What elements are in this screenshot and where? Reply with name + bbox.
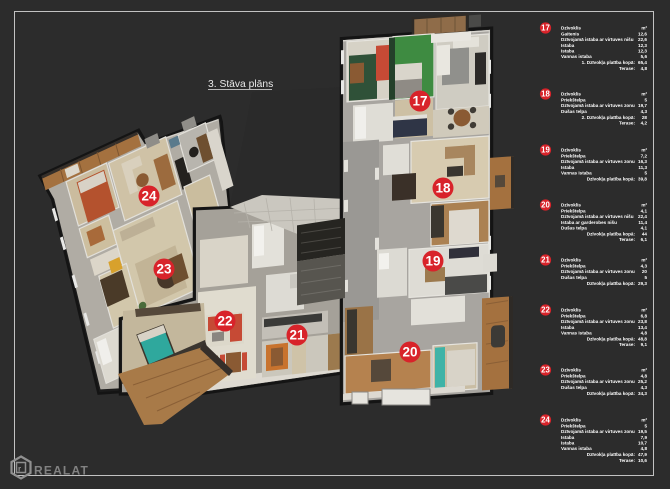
svg-text:Dzīvokļa platība kopā:: Dzīvokļa platība kopā:: [587, 391, 636, 396]
svg-text:Dzīvoklis: Dzīvoklis: [561, 92, 581, 97]
svg-text:Terase:: Terase:: [619, 121, 635, 126]
svg-text:17: 17: [412, 94, 427, 109]
svg-text:7,2: 7,2: [641, 154, 648, 159]
svg-text:4,8: 4,8: [641, 66, 648, 71]
svg-text:Dzīvojamā istaba ar virtuves z: Dzīvojamā istaba ar virtuves zonu: [561, 103, 635, 108]
svg-text:Dzīvojamā istaba ar virtuves z: Dzīvojamā istaba ar virtuves zonu: [561, 379, 635, 384]
svg-text:25,2: 25,2: [638, 379, 647, 384]
svg-text:Dzīvoklis: Dzīvoklis: [561, 203, 581, 208]
svg-text:19: 19: [541, 146, 550, 155]
svg-text:29,3: 29,3: [638, 281, 647, 286]
svg-text:Vannas istaba: Vannas istaba: [561, 330, 592, 335]
svg-text:34,3: 34,3: [638, 391, 647, 396]
svg-text:Priekštelpa: Priekštelpa: [561, 98, 586, 103]
svg-text:11,4: 11,4: [638, 220, 647, 225]
svg-text:Dzīvokļa platība kopā:: Dzīvokļa platība kopā:: [587, 281, 636, 286]
svg-text:4,3: 4,3: [641, 109, 648, 114]
svg-text:Dzīvoklis: Dzīvoklis: [561, 26, 581, 31]
svg-text:Dzīvoklis: Dzīvoklis: [561, 148, 581, 153]
svg-text:Dušas telpa: Dušas telpa: [561, 385, 587, 390]
svg-text:10,6: 10,6: [638, 458, 647, 463]
svg-text:5: 5: [644, 170, 647, 175]
svg-text:39,8: 39,8: [638, 176, 647, 181]
svg-text:m²: m²: [641, 26, 647, 31]
svg-text:Dzīvojamā istaba ar virtuves z: Dzīvojamā istaba ar virtuves zonu: [561, 429, 635, 434]
svg-text:Terase:: Terase:: [619, 237, 635, 242]
svg-text:Istaba: Istaba: [561, 325, 575, 330]
svg-text:Terase:: Terase:: [619, 66, 635, 71]
svg-text:5: 5: [644, 275, 647, 280]
svg-text:m²: m²: [641, 258, 647, 263]
svg-text:m²: m²: [641, 203, 647, 208]
svg-text:22: 22: [541, 306, 550, 315]
svg-text:12,6: 12,6: [638, 32, 647, 37]
svg-text:23: 23: [156, 262, 172, 277]
svg-text:18: 18: [435, 181, 451, 196]
svg-text:m²: m²: [641, 92, 647, 97]
svg-text:Dušas telpa: Dušas telpa: [561, 109, 587, 114]
svg-text:22,6: 22,6: [638, 37, 647, 42]
svg-text:Vannas istaba: Vannas istaba: [561, 446, 592, 451]
svg-text:17: 17: [541, 24, 550, 33]
svg-text:Dzīvokļa platība kopā:: Dzīvokļa platība kopā:: [587, 231, 636, 236]
svg-text:21: 21: [541, 256, 550, 265]
svg-text:Dzīvokļa platība kopā:: Dzīvokļa platība kopā:: [587, 176, 636, 181]
svg-text:20: 20: [541, 201, 550, 210]
svg-text:Gaitenis: Gaitenis: [561, 32, 580, 37]
svg-text:1. Dzīvokļa platība kopā:: 1. Dzīvokļa platība kopā:: [582, 60, 636, 65]
svg-text:Dzīvoklis: Dzīvoklis: [561, 258, 581, 263]
svg-text:Dzīvojamā istaba ar virtuves n: Dzīvojamā istaba ar virtuves nišu: [561, 214, 634, 219]
svg-text:47,9: 47,9: [638, 452, 647, 457]
svg-text:3. Stāva plāns: 3. Stāva plāns: [208, 79, 273, 90]
svg-text:Priekštelpa: Priekštelpa: [561, 264, 586, 269]
svg-text:12,3: 12,3: [638, 48, 647, 53]
svg-text:Vannas istaba: Vannas istaba: [561, 170, 592, 175]
svg-text:Dušas telpa: Dušas telpa: [561, 225, 587, 230]
svg-text:2. Dzīvokļa platība kopā:: 2. Dzīvokļa platība kopā:: [582, 115, 636, 120]
svg-text:5,6: 5,6: [641, 54, 648, 59]
svg-text:Priekštelpa: Priekštelpa: [561, 209, 586, 214]
svg-text:Dzīvojamā istaba ar virtuves z: Dzīvojamā istaba ar virtuves zonu: [561, 269, 635, 274]
svg-text:Priekštelpa: Priekštelpa: [561, 374, 586, 379]
svg-text:24: 24: [141, 189, 157, 204]
svg-text:48,8: 48,8: [638, 336, 647, 341]
svg-text:22,4: 22,4: [638, 214, 647, 219]
svg-text:65,4: 65,4: [638, 60, 647, 65]
svg-text:6,8: 6,8: [641, 314, 648, 319]
svg-text:Dzīvoklis: Dzīvoklis: [561, 368, 581, 373]
svg-text:19,5: 19,5: [638, 429, 647, 434]
svg-text:Dzīvoklis: Dzīvoklis: [561, 418, 581, 423]
svg-text:m²: m²: [641, 368, 647, 373]
svg-text:23,8: 23,8: [638, 319, 647, 324]
svg-text:22: 22: [217, 314, 232, 329]
svg-text:m²: m²: [641, 148, 647, 153]
svg-text:r: r: [18, 465, 21, 474]
svg-text:19: 19: [425, 254, 440, 269]
svg-text:Istaba: Istaba: [561, 165, 575, 170]
svg-text:Priekštelpa: Priekštelpa: [561, 424, 586, 429]
svg-text:5: 5: [644, 98, 647, 103]
svg-text:Terase:: Terase:: [619, 342, 635, 347]
svg-text:Dzīvojamā istaba ar virtuves z: Dzīvojamā istaba ar virtuves zonu: [561, 319, 635, 324]
svg-text:Istaba: Istaba: [561, 48, 575, 53]
svg-text:4,3: 4,3: [641, 264, 648, 269]
svg-text:Dzīvojamā istaba ar virtuves n: Dzīvojamā istaba ar virtuves nišu: [561, 37, 634, 42]
svg-text:4,8: 4,8: [641, 374, 648, 379]
svg-text:Vannas istaba: Vannas istaba: [561, 54, 592, 59]
svg-text:7,9: 7,9: [641, 435, 648, 440]
svg-text:20: 20: [642, 269, 648, 274]
svg-text:REALAT: REALAT: [34, 464, 89, 478]
svg-text:12,3: 12,3: [638, 43, 647, 48]
svg-text:Priekštelpa: Priekštelpa: [561, 154, 586, 159]
svg-text:5: 5: [644, 424, 647, 429]
svg-text:4,1: 4,1: [641, 209, 648, 214]
svg-text:9,1: 9,1: [641, 342, 648, 347]
svg-text:4,1: 4,1: [641, 225, 648, 230]
svg-text:m²: m²: [641, 418, 647, 423]
svg-text:21: 21: [289, 328, 305, 343]
svg-text:Istaba: Istaba: [561, 43, 575, 48]
svg-text:19,7: 19,7: [638, 103, 647, 108]
svg-text:18: 18: [541, 90, 550, 99]
svg-text:16,3: 16,3: [638, 159, 647, 164]
svg-text:4,8: 4,8: [641, 446, 648, 451]
svg-text:Istaba ar garderobes nišu: Istaba ar garderobes nišu: [561, 220, 617, 225]
svg-text:Dzīvoklis: Dzīvoklis: [561, 308, 581, 313]
svg-text:Dzīvokļa platība kopā:: Dzīvokļa platība kopā:: [587, 452, 636, 457]
svg-text:Istaba: Istaba: [561, 435, 575, 440]
svg-text:Istaba: Istaba: [561, 440, 575, 445]
svg-text:24: 24: [541, 416, 550, 425]
svg-text:28: 28: [642, 115, 648, 120]
svg-text:m²: m²: [641, 308, 647, 313]
svg-text:Dzīvojamā istaba ar virtuves z: Dzīvojamā istaba ar virtuves zonu: [561, 159, 635, 164]
svg-text:4,8: 4,8: [641, 330, 648, 335]
svg-text:23: 23: [541, 366, 550, 375]
svg-text:Dušas telpa: Dušas telpa: [561, 275, 587, 280]
svg-text:44: 44: [642, 231, 648, 236]
svg-text:13,4: 13,4: [638, 325, 647, 330]
svg-text:11,3: 11,3: [638, 165, 647, 170]
svg-text:Priekštelpa: Priekštelpa: [561, 314, 586, 319]
svg-text:4,2: 4,2: [641, 121, 648, 126]
svg-text:Terase:: Terase:: [619, 458, 635, 463]
svg-text:20: 20: [402, 345, 417, 360]
svg-text:10,7: 10,7: [638, 440, 647, 445]
svg-text:4,3: 4,3: [641, 385, 648, 390]
svg-text:6,1: 6,1: [641, 237, 648, 242]
svg-text:Dzīvokļa platība kopā:: Dzīvokļa platība kopā:: [587, 336, 636, 341]
